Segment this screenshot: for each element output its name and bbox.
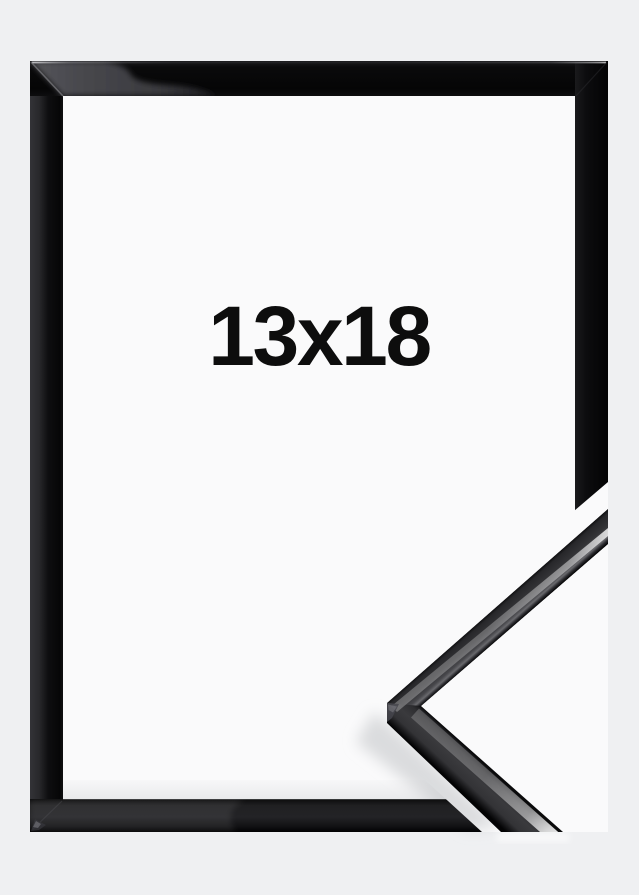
- svg-text:13x18: 13x18: [208, 289, 430, 383]
